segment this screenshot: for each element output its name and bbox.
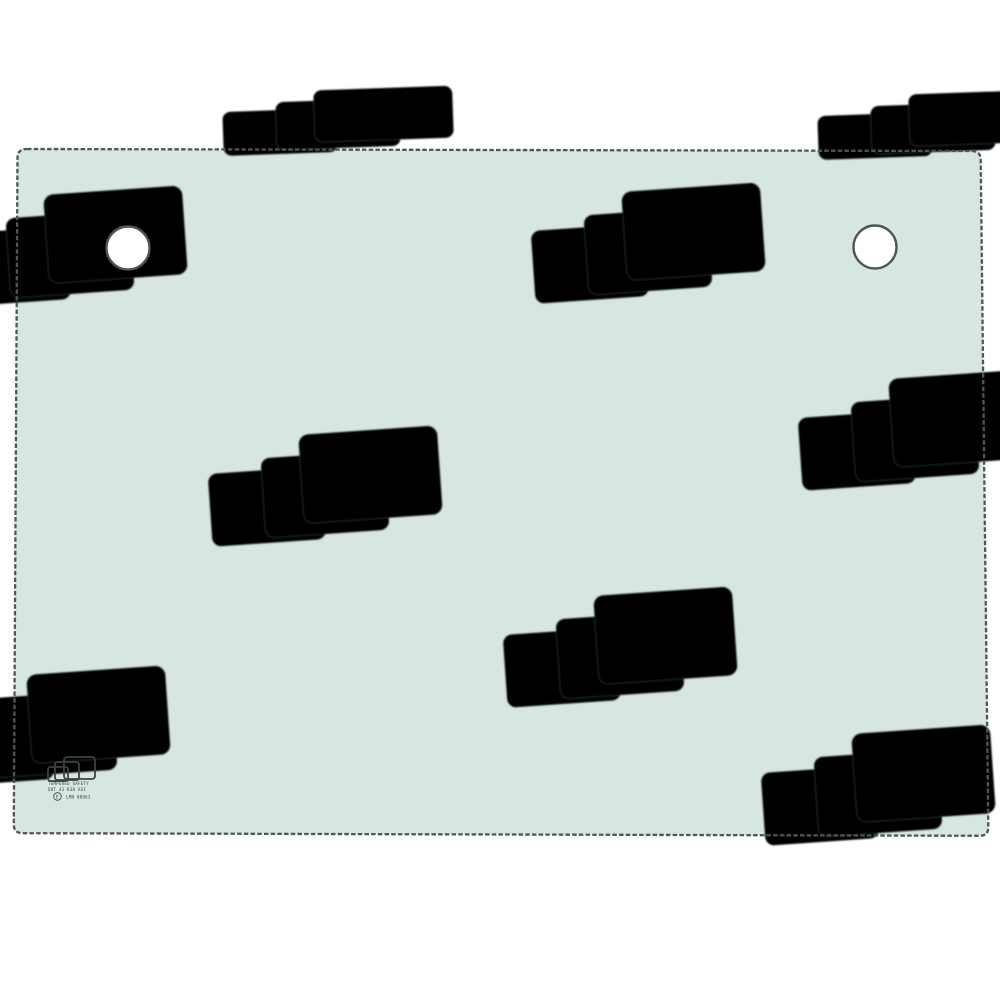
stamp-text-line2: DOT 43 R38 AS1	[48, 787, 86, 792]
glass-pane-image: TEMPERED SAFETY DOT 43 R38 AS1 E LMN 009…	[0, 0, 1000, 1000]
watermark-motif	[222, 86, 454, 156]
stamp-text-line1: TEMPERED SAFETY	[48, 781, 89, 786]
stamp-text-line3: LMN 00963	[66, 795, 91, 800]
product-photo: TEMPERED SAFETY DOT 43 R38 AS1 E LMN 009…	[0, 0, 1000, 1000]
watermark-motif	[817, 90, 1000, 160]
mounting-hole-right	[854, 226, 897, 269]
e-mark-letter: E	[56, 794, 59, 800]
mounting-hole-left	[107, 227, 150, 270]
